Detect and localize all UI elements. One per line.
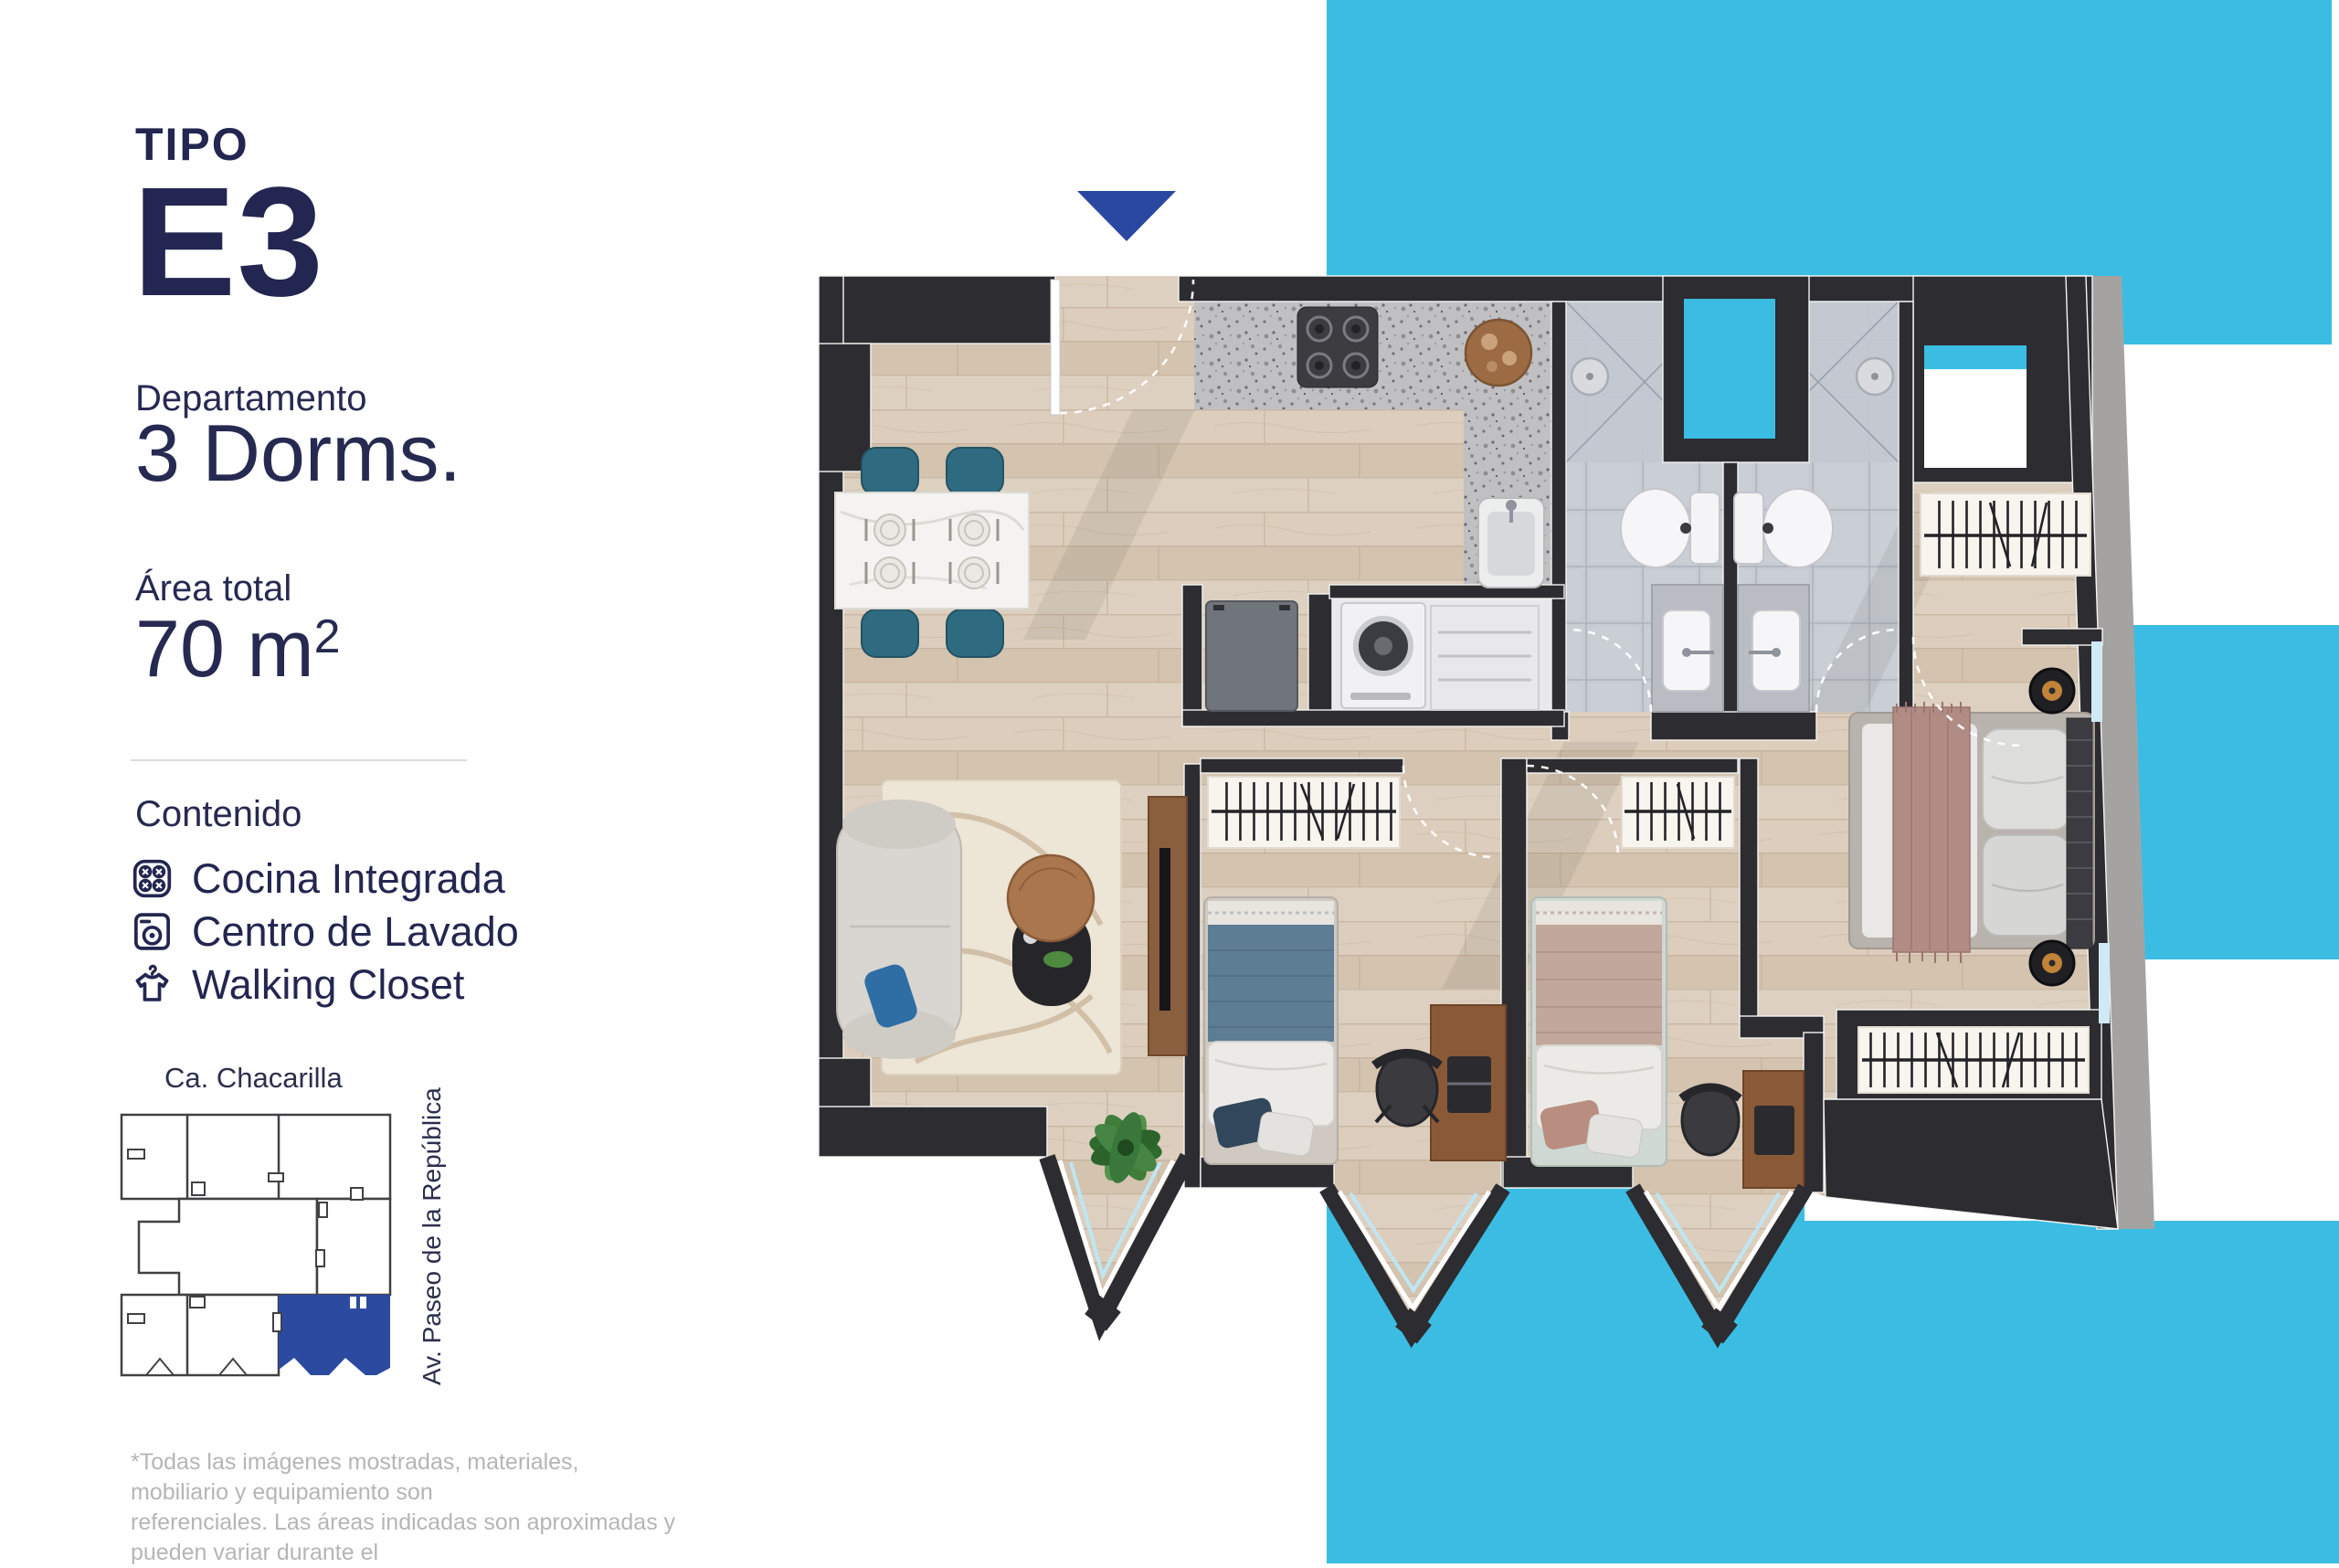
bed-double: [1849, 702, 2094, 963]
refrigerator: [1206, 601, 1297, 711]
window: [2099, 943, 2110, 1023]
section-divider: [131, 759, 467, 761]
bedrooms-count: 3 Dorms.: [135, 411, 461, 495]
type-code: E3: [132, 164, 324, 320]
bedside-speaker: [2030, 669, 2074, 713]
duct-shaft: [1684, 299, 1775, 439]
coffee-table: [1008, 855, 1094, 1006]
closet-rack-bedroom-2: [1622, 777, 1734, 848]
contents-title: Contenido: [135, 796, 302, 832]
bedside-speaker: [2030, 941, 2074, 985]
entry-door-leaf: [1051, 280, 1060, 415]
disclaimer-text: *Todas las imágenes mostradas, materiale…: [131, 1447, 679, 1568]
tv-console: [1148, 797, 1187, 1055]
sofa: [837, 800, 961, 1059]
desk-chair-2: [1681, 1086, 1740, 1155]
toilet-1: [1621, 489, 1720, 567]
vanity-1: [1652, 585, 1723, 712]
washer-icon: [131, 910, 174, 953]
dining-chair: [947, 609, 1003, 657]
closet-rack-bedroom-1: [1208, 777, 1400, 848]
closet-rack-bottom: [1858, 1027, 2089, 1093]
bed-single-1: [1204, 897, 1338, 1164]
cooktop-icon: [131, 857, 174, 900]
walkin-closet-rack: [1921, 493, 2090, 576]
desk-1: [1431, 1005, 1506, 1160]
dining-chair: [862, 609, 918, 657]
content-item-closet: Walking Closet: [131, 961, 464, 1007]
content-label: Cocina Integrada: [192, 858, 505, 899]
serving-tray: [1466, 320, 1531, 386]
tshirt-hanger-icon: [131, 963, 174, 1006]
area-label: Área total: [135, 570, 291, 607]
closet-window: [1924, 345, 2027, 468]
street-label-right: Av. Paseo de la República: [418, 1087, 446, 1385]
toilet-2: [1734, 489, 1833, 567]
desk-chair-1: [1374, 1053, 1440, 1126]
window: [2091, 641, 2102, 722]
street-label-top: Ca. Chacarilla: [164, 1062, 343, 1094]
floor-plan-render: Ca. Chacarilla Av. Paseo de la República: [0, 0, 2339, 1563]
area-number: 70 m: [135, 603, 314, 694]
desk-2: [1743, 1071, 1804, 1188]
area-value: 70 m2: [135, 607, 341, 691]
tv: [1159, 848, 1170, 1011]
content-label: Centro de Lavado: [192, 911, 519, 952]
area-exponent: 2: [314, 610, 341, 663]
vanity-2: [1738, 585, 1809, 712]
washer: [1341, 603, 1425, 708]
stove: [1297, 307, 1378, 387]
disclaimer-line: referenciales. Las áreas indicadas son a…: [131, 1508, 679, 1568]
content-label: Walking Closet: [192, 964, 464, 1005]
laundry-shelf: [1431, 606, 1539, 710]
bed-throw: [1893, 707, 1970, 952]
dining-table: [835, 493, 1029, 609]
disclaimer-line: *Todas las imágenes mostradas, materiale…: [131, 1447, 679, 1508]
headboard: [2067, 718, 2092, 948]
dining-chair: [947, 448, 1003, 495]
content-item-laundry: Centro de Lavado: [131, 908, 519, 954]
dining-chair: [862, 448, 918, 495]
content-item-kitchen: Cocina Integrada: [131, 855, 505, 901]
kitchen-sink: [1478, 498, 1544, 588]
bed-single-2: [1531, 897, 1667, 1166]
